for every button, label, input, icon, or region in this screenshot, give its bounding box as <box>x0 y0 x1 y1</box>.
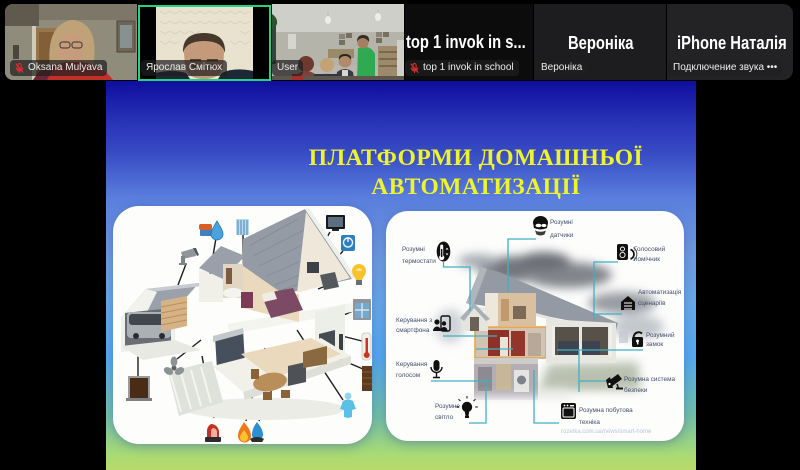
svg-text:сценаріїв: сценаріїв <box>638 299 666 307</box>
svg-text:датчики: датчики <box>550 232 574 239</box>
svg-text:термостати: термостати <box>402 258 436 265</box>
svg-text:помічник: помічник <box>634 255 660 263</box>
svg-text:Керування: Керування <box>396 361 428 368</box>
svg-text:смартфона: смартфона <box>396 327 430 334</box>
svg-text:безпеки: безпеки <box>624 386 648 394</box>
svg-text:Голосовий: Голосовий <box>634 245 666 253</box>
svg-text:Розумна побутова: Розумна побутова <box>579 406 633 414</box>
svg-text:rozetka.com.ua/news/smart-home: rozetka.com.ua/news/smart-home <box>561 429 652 435</box>
svg-text:Розумне: Розумне <box>435 403 460 410</box>
svg-text:Автоматизація: Автоматизація <box>638 288 682 296</box>
svg-text:Розумні: Розумні <box>402 245 425 253</box>
svg-text:голосом: голосом <box>396 372 420 379</box>
svg-text:Керування з: Керування з <box>396 317 432 324</box>
svg-text:Розумний: Розумний <box>646 331 675 339</box>
svg-text:Розумна система: Розумна система <box>624 376 675 383</box>
svg-text:світло: світло <box>435 413 454 421</box>
svg-text:техніка: техніка <box>579 418 600 426</box>
svg-text:замок: замок <box>646 341 663 348</box>
svg-text:Розумні: Розумні <box>550 218 573 226</box>
